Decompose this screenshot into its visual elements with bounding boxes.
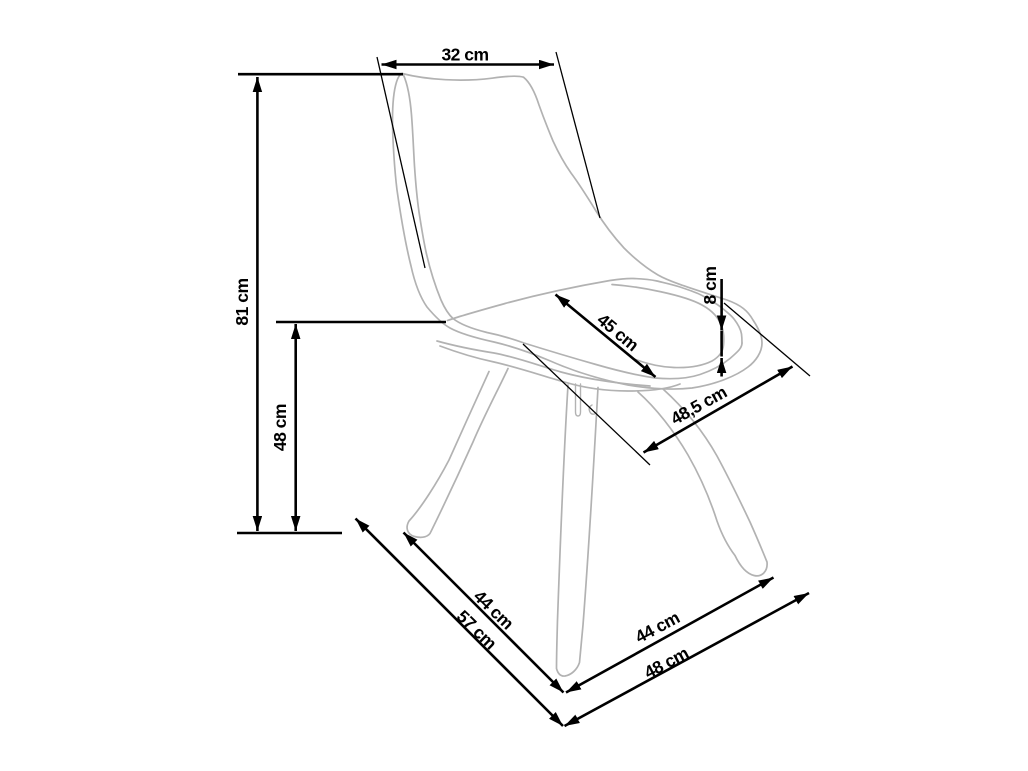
svg-text:8 cm: 8 cm <box>700 267 720 305</box>
svg-text:32 cm: 32 cm <box>441 44 488 64</box>
svg-text:48 cm: 48 cm <box>270 404 290 451</box>
svg-text:81 cm: 81 cm <box>232 278 252 325</box>
